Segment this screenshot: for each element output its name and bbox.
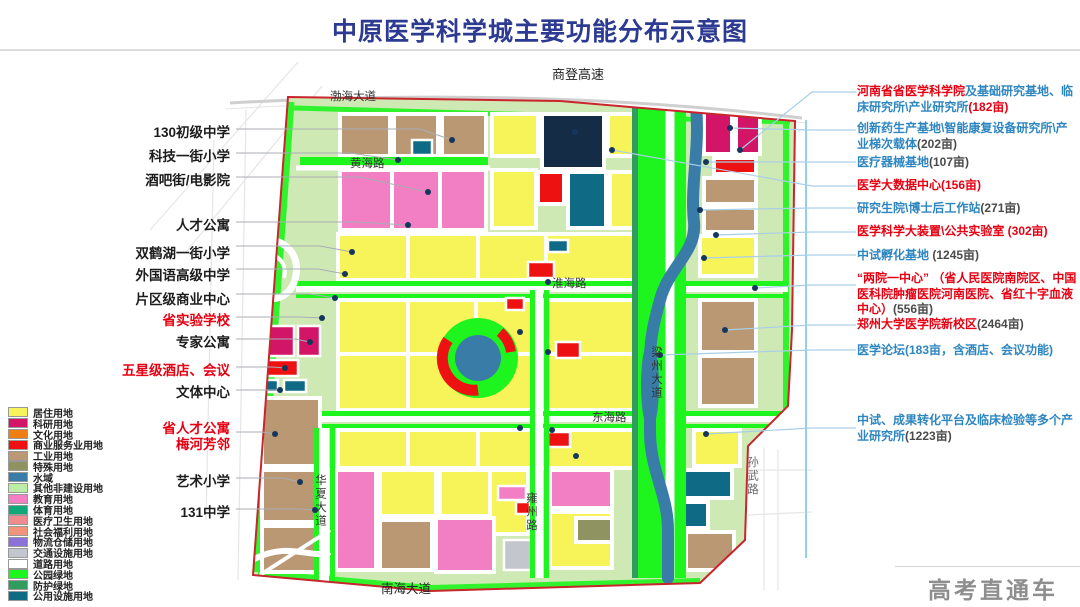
- callout-segment: 研究生院\博士后工作站: [857, 201, 980, 215]
- callout-innovation-drug-base: 创新药生产基地\智能康复设备研究所\产业梯次载体(202亩): [857, 121, 1078, 152]
- callout-keji-primary: 科技一街小学: [0, 145, 230, 165]
- watermark: 高考直通车: [928, 571, 1058, 605]
- callout-district-commercial-center: 片区级商业中心: [0, 288, 230, 308]
- legend-swatch: [8, 472, 28, 482]
- callout-medical-device-base: 医疗器械基地(107亩): [857, 155, 1078, 171]
- road-label-bohai: 渤海大道: [330, 88, 376, 104]
- callout-two-hospitals-center: “两院一中心” （省人民医院南院区、中国医科院肿瘤医院河南医院、省红十字血液中心…: [857, 271, 1078, 318]
- legend-swatch: [8, 494, 28, 504]
- legend-swatch: [8, 526, 28, 536]
- road-label-nanhai: 南海大道: [381, 578, 431, 597]
- legend-swatch: [8, 451, 28, 461]
- legend-swatch: [8, 440, 28, 450]
- callout-segment: 医学科学大装置\公共实验室 (302亩): [857, 224, 1048, 238]
- callout-segment: 创新药生产基地\智能康复设备研究所\产业梯次载体: [857, 121, 1068, 151]
- callout-medical-academy: 河南省省医学科学院及基础研究基地、临床研究所\产业研究所(182亩): [857, 84, 1078, 115]
- callout-segment: 河南省省医学科学院: [857, 84, 965, 98]
- road-label-donghai: 东海路: [592, 409, 627, 425]
- callout-segment: 医疗器械基地: [857, 155, 929, 169]
- road-label-huaxia: 华夏大道: [312, 474, 328, 528]
- callout-segment: (556亩): [893, 302, 933, 316]
- industrial-blocks: [340, 114, 486, 156]
- callout-big-data-center: 医学大数据中心(156亩): [857, 178, 1078, 194]
- road-label-yongzhou: 雍州路: [523, 492, 539, 533]
- callout-talent-apartment: 人才公寓: [0, 214, 230, 234]
- legend-item: 公用设施用地: [8, 591, 103, 602]
- legend-swatch: [8, 537, 28, 547]
- legend-swatch: [8, 559, 28, 569]
- legend-swatch: [8, 461, 28, 471]
- legend-swatch: [8, 429, 28, 439]
- legend-swatch: [8, 483, 28, 493]
- education-blocks: [340, 170, 486, 230]
- title-divider: [0, 49, 1080, 51]
- page-title: 中原医学科学城主要功能分布示意图: [0, 12, 1080, 48]
- road-label-huanghai: 黄海路: [350, 155, 385, 171]
- liangzhou-corridor: [632, 106, 686, 578]
- planning-map-page: 中原医学科学城主要功能分布示意图 商登高速 渤海大道 黄海路 淮海路 东海路 南…: [0, 0, 1080, 607]
- callout-medical-forum: 医学论坛(183亩，含酒店、会议功能): [857, 343, 1078, 359]
- callout-segment: 医学论坛(183亩，含酒店、会议功能): [857, 343, 1053, 357]
- callout-graduate-school: 研究生院\博士后工作站(271亩): [857, 201, 1078, 217]
- legend-swatch: [8, 407, 28, 417]
- callout-shuanghehu-primary: 双鹤湖一街小学: [0, 242, 230, 262]
- callout-science-facility: 医学科学大装置\公共实验室 (302亩): [857, 224, 1078, 240]
- legend-swatch: [8, 505, 28, 515]
- road-label-sunwu: 孙武路: [744, 456, 760, 497]
- legend: 居住用地科研用地文化用地商业服务业用地工业用地特殊用地水域其他非建设用地教育用地…: [8, 407, 103, 601]
- callout-zhengzhou-univ-campus: 郑州大学医学院新校区(2464亩): [857, 317, 1078, 333]
- watermark-rule: [895, 566, 1080, 567]
- callout-segment: (107亩): [929, 155, 969, 169]
- legend-item: 特殊用地: [8, 461, 103, 472]
- callout-foreign-language-school: 外国语高级中学: [0, 264, 230, 284]
- callout-segment: (1223亩): [905, 429, 952, 443]
- huanghai-park-strip: [300, 157, 488, 165]
- callout-segment: (182亩): [968, 100, 1008, 114]
- callout-segment: (271亩): [980, 201, 1020, 215]
- callout-segment: 郑州大学医学院新校区: [857, 317, 977, 331]
- callout-bar-cinema: 酒吧街/电影院: [0, 169, 230, 189]
- callout-transformation-platform: 中试、成果转化平台及临床检验等多个产业研究所(1223亩): [857, 413, 1078, 444]
- callout-segment: 中试孵化基地: [857, 248, 932, 262]
- legend-label: 公用设施用地: [33, 588, 93, 603]
- yongzhou-road: [530, 290, 549, 578]
- legend-swatch: [8, 569, 28, 579]
- callout-expert-apartment: 专家公寓: [0, 331, 230, 351]
- road-label-liangzhou: 梁州大道: [648, 346, 664, 400]
- callout-segment: 中试、成果转化平台及临床检验等多个产业研究所: [857, 413, 1073, 443]
- callout-school-130: 130初级中学: [0, 121, 230, 141]
- callout-segment: 医学大数据中心(156亩): [857, 178, 981, 192]
- callout-segment: (1245亩): [932, 248, 979, 262]
- legend-swatch: [8, 580, 28, 590]
- callout-segment: “两院一中心” （省人民医院南院区、中国医科院肿瘤医院河南医院、省红十字血液中心…: [857, 271, 1076, 316]
- callout-segment: (202亩): [917, 137, 957, 151]
- road-label-shangdeng: 商登高速: [552, 64, 604, 83]
- callout-culture-sports-center: 文体中心: [0, 381, 230, 401]
- road-label-huaihai: 淮海路: [552, 275, 587, 291]
- legend-swatch: [8, 548, 28, 558]
- callout-five-star-hotel: 五星级酒店、会议: [0, 359, 230, 379]
- legend-swatch: [8, 591, 28, 601]
- legend-swatch: [8, 515, 28, 525]
- central-lake-circle: [438, 318, 518, 398]
- callout-segment: (2464亩): [977, 317, 1024, 331]
- callout-pilot-incubation: 中试孵化基地 (1245亩): [857, 248, 1078, 264]
- callout-provincial-experimental-school: 省实验学校: [0, 309, 230, 329]
- legend-swatch: [8, 418, 28, 428]
